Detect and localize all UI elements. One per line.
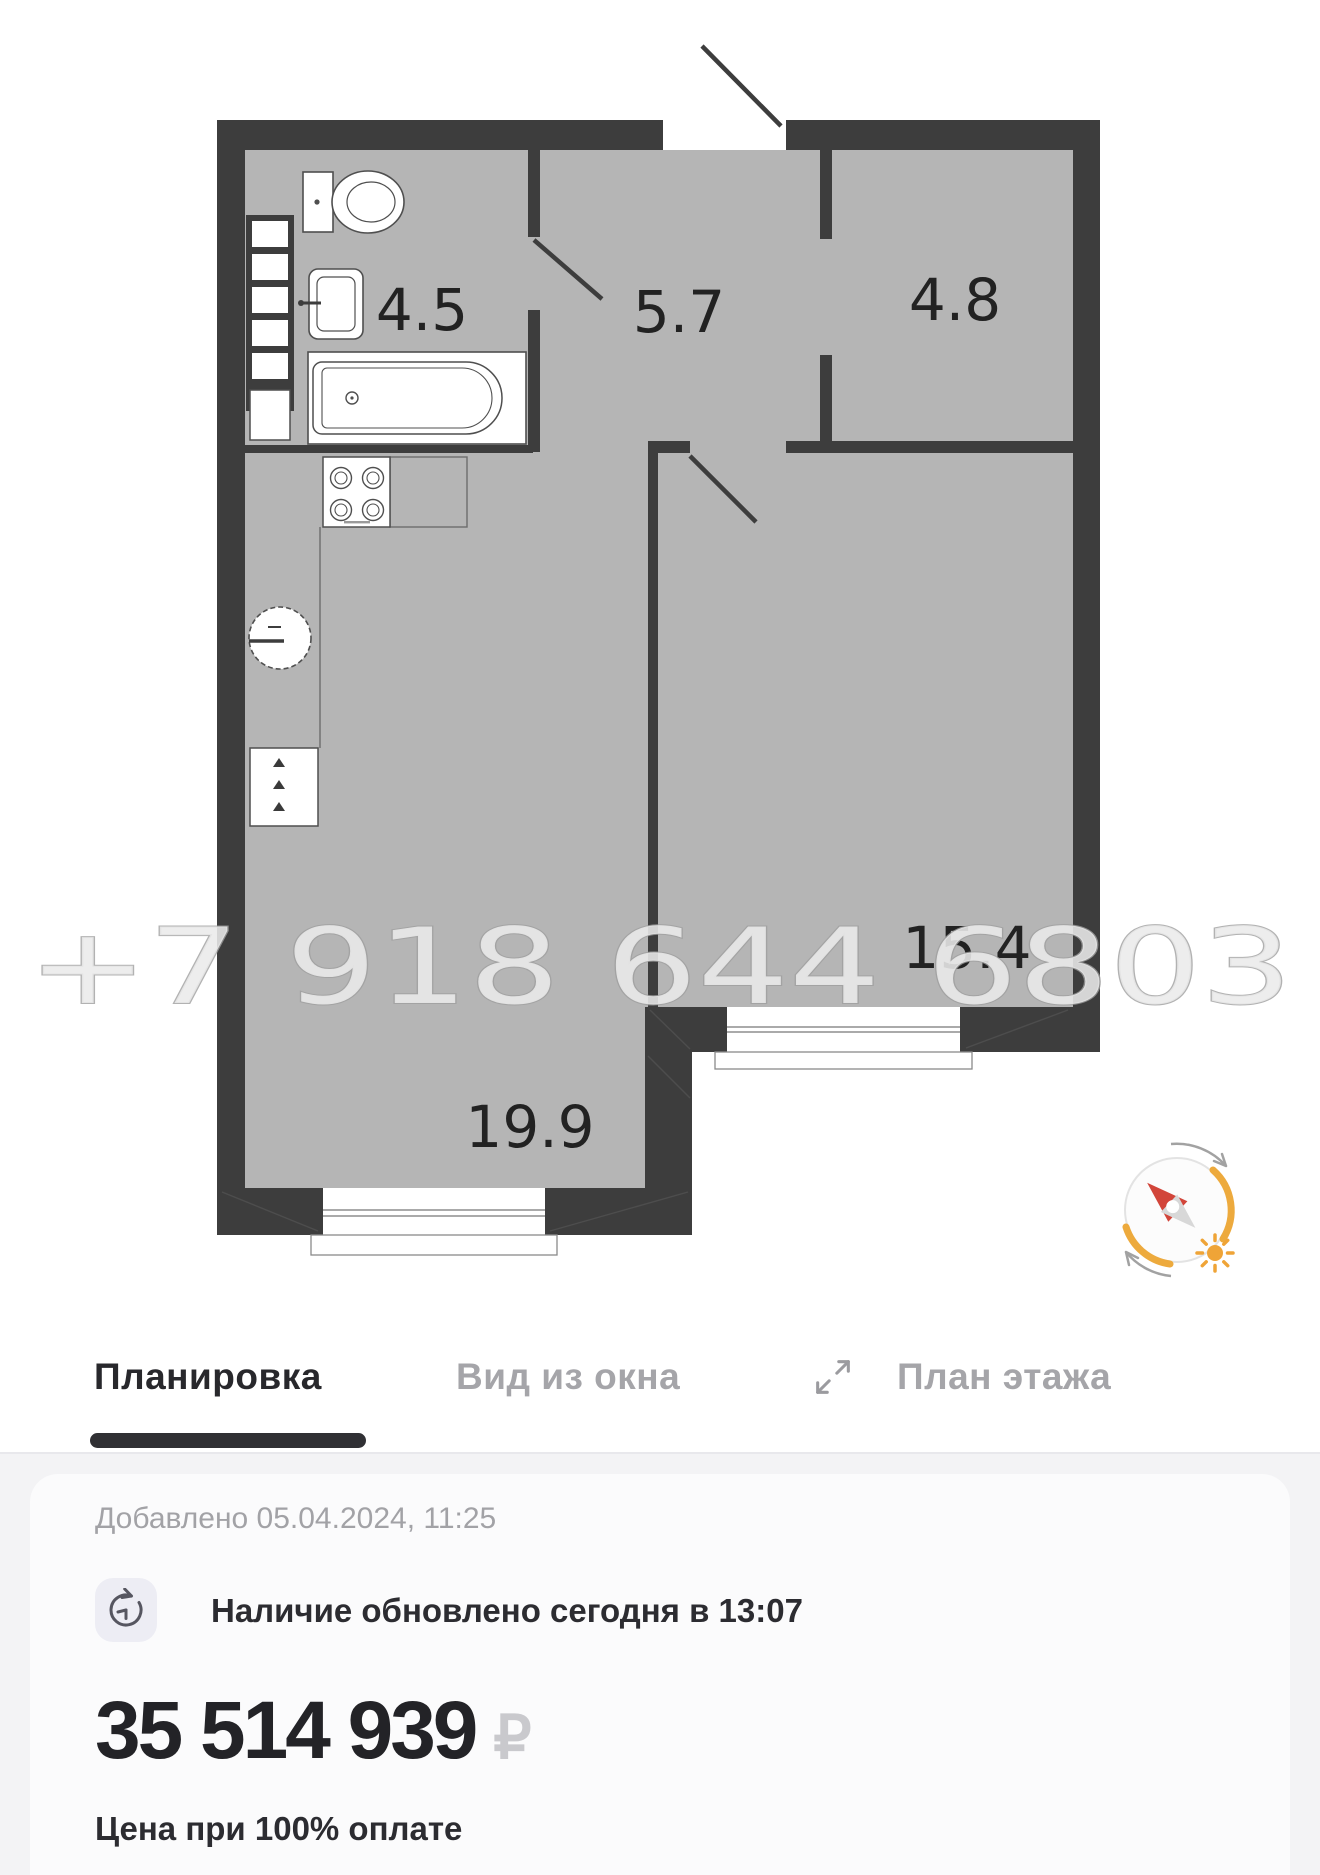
kitchen-sink-icon xyxy=(249,607,311,669)
area-bathroom: 4.5 xyxy=(376,276,468,344)
tab-floor-plan[interactable]: План этажа xyxy=(897,1356,1111,1398)
tab-window-view[interactable]: Вид из окна xyxy=(456,1356,680,1398)
clock-refresh-icon xyxy=(104,1588,148,1632)
price-value: 35 514 939 xyxy=(95,1685,475,1776)
ruble-sign: ₽ xyxy=(493,1704,531,1771)
area-kitchen-living: 19.9 xyxy=(465,1093,594,1161)
expand-icon[interactable] xyxy=(810,1354,856,1400)
tab-layout[interactable]: Планировка xyxy=(94,1356,322,1398)
watermark-phone: +7 918 644 6803 xyxy=(28,906,1293,1028)
details-section: Добавлено 05.04.2024, 11:25 Наличие обно… xyxy=(0,1452,1320,1875)
towel-ladder xyxy=(246,215,294,440)
sun-icon xyxy=(1197,1235,1233,1271)
listing-screen: 4.5 5.7 4.8 15.4 19.9 +7 918 644 6803 xyxy=(0,0,1320,1875)
info-card: Добавлено 05.04.2024, 11:25 Наличие обно… xyxy=(30,1474,1290,1875)
availability-badge xyxy=(95,1578,157,1642)
stove-icon xyxy=(323,457,390,527)
added-date: Добавлено 05.04.2024, 11:25 xyxy=(95,1502,496,1536)
toilet-icon xyxy=(303,171,404,233)
active-tab-underline xyxy=(90,1433,366,1448)
window-living xyxy=(311,1188,557,1255)
area-hallway: 5.7 xyxy=(633,278,725,346)
riser-cabinet xyxy=(250,748,318,826)
price-row: 35 514 939₽ xyxy=(95,1684,532,1778)
area-wardrobe: 4.8 xyxy=(909,266,1001,334)
compass-icon xyxy=(1125,1144,1233,1276)
bathtub-icon xyxy=(308,352,526,444)
price-caption: Цена при 100% оплате xyxy=(95,1810,462,1848)
floor-plan: 4.5 5.7 4.8 15.4 19.9 +7 918 644 6803 xyxy=(0,0,1320,1340)
availability-text: Наличие обновлено сегодня в 13:07 xyxy=(211,1592,803,1630)
